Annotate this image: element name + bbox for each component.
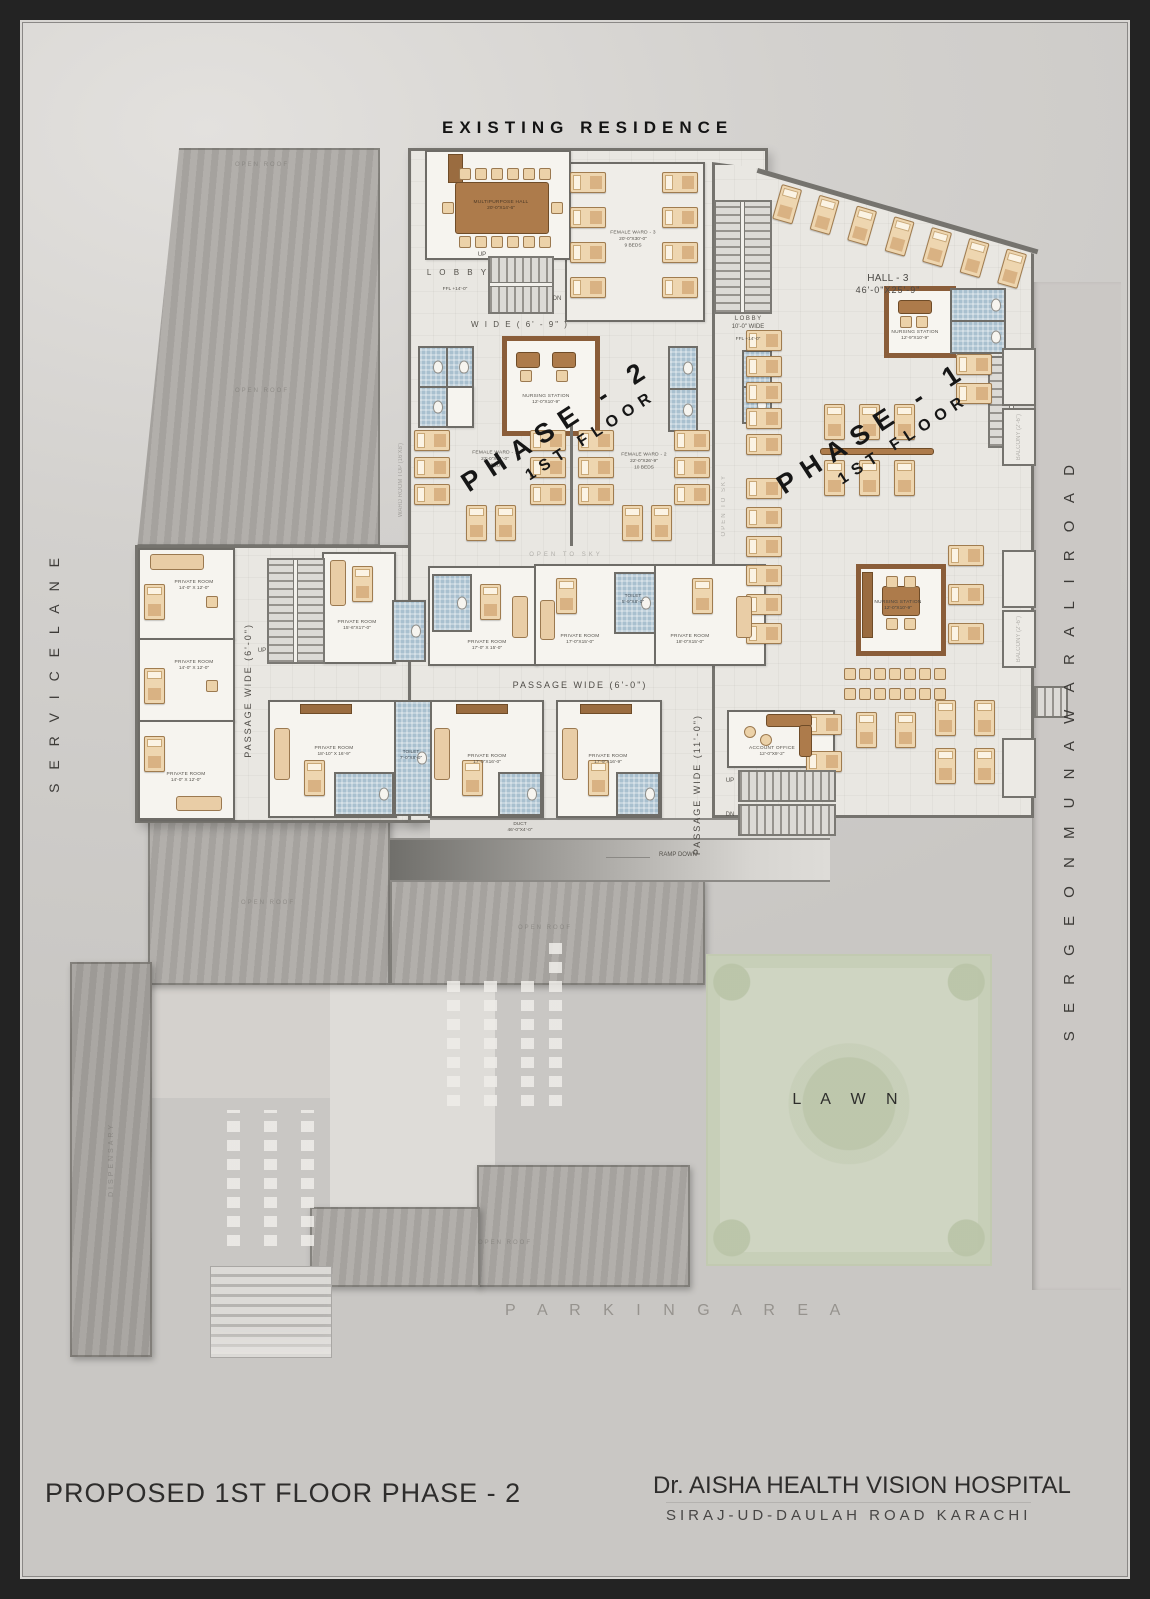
nurse-table — [552, 352, 576, 368]
bed-icon — [578, 484, 614, 505]
tv-console — [580, 704, 632, 714]
bed-column — [948, 545, 984, 644]
bed-icon — [948, 545, 984, 566]
lobby-left-level: FFL +14'-0" — [443, 287, 468, 293]
bed-icon — [662, 242, 698, 263]
chair-icon — [539, 168, 551, 180]
account-office-label: ACCOUNT OFFICE 12'-0"X9'-2" — [749, 746, 795, 758]
open-roof-label: OPEN ROOF — [478, 1240, 532, 1248]
chair-icon — [523, 236, 535, 248]
toilet-room — [432, 574, 472, 632]
service-lane-label: S E R V I C E L A N E — [40, 548, 68, 798]
bed-icon — [662, 172, 698, 193]
bed-icon — [674, 430, 710, 451]
bed-icon — [974, 748, 995, 784]
toilet-room — [950, 320, 1006, 354]
sofa — [736, 596, 752, 638]
duct-label: DUCT 46'-0"X4'-0" — [508, 822, 533, 834]
sofa — [176, 796, 222, 811]
balcony — [1002, 738, 1036, 798]
chair-icon — [459, 236, 471, 248]
bed-icon — [692, 578, 713, 614]
chair-icon — [919, 668, 931, 680]
open-roof-label: OPEN ROOF — [518, 925, 572, 933]
balcony: BALCONY (2'-6") — [1002, 408, 1036, 466]
female-ward-2-label: FEMALE WARD - 2 22'-0"X26'-9" 10 BEDS — [621, 452, 667, 471]
open-to-sky-corridor-label: OPEN TO SKY — [714, 420, 734, 590]
bed-icon — [556, 578, 577, 614]
bed-icon — [570, 277, 606, 298]
chair-icon — [206, 596, 218, 608]
waiting-chairs-row — [844, 668, 946, 680]
private-room-3-label: PRIVATE ROOM 14'-0" X 12'-0" — [167, 772, 206, 784]
bed-icon — [935, 700, 956, 736]
bed-icon — [570, 172, 606, 193]
bed-icon — [674, 457, 710, 478]
parking-marks — [264, 1110, 277, 1246]
chair-icon — [844, 668, 856, 680]
chair-icon — [889, 668, 901, 680]
nursing-station-phase1-label: NURSING STATION 12'-0"X10'-9" — [874, 600, 921, 612]
dn-label: DN — [553, 296, 562, 304]
open-roof-label: OPEN ROOF — [235, 388, 289, 396]
chair-icon — [520, 370, 532, 382]
up-label: UP — [726, 778, 734, 786]
chair-icon — [442, 202, 454, 214]
lobby-left-label: L O B B Y — [427, 268, 489, 278]
tv-console — [456, 704, 508, 714]
bed-icon — [674, 484, 710, 505]
sofa — [434, 728, 450, 780]
chair-icon — [475, 168, 487, 180]
bed-icon — [414, 484, 450, 505]
office-desk — [799, 725, 812, 757]
chair-icon — [507, 236, 519, 248]
parking-marks — [447, 980, 460, 1106]
parking-marks — [549, 938, 562, 1106]
sofa — [512, 596, 528, 638]
bed-icon — [352, 566, 373, 602]
bed-icon — [894, 460, 915, 496]
toilet-room — [668, 346, 698, 390]
lawn: L A W N — [706, 954, 992, 1266]
bed-icon — [651, 505, 672, 541]
chair-icon — [491, 168, 503, 180]
chair-icon — [507, 168, 519, 180]
sofa — [150, 554, 204, 570]
chair-row — [459, 236, 551, 248]
chair-icon — [475, 236, 487, 248]
bed-icon — [922, 227, 952, 267]
counter — [862, 572, 873, 638]
bed-icon — [810, 195, 840, 235]
toilet-room — [418, 346, 448, 388]
ramp-leader-line — [606, 857, 650, 858]
parking-marks — [227, 1110, 240, 1246]
private-room-7-label: PRIVATE ROOM 18'-0"X15'-0" — [671, 634, 710, 646]
bed-icon — [662, 277, 698, 298]
lawn-label: L A W N — [792, 1091, 905, 1109]
bed-column — [414, 430, 450, 505]
bed-icon — [746, 408, 782, 429]
bed-icon — [144, 584, 165, 620]
chair-icon — [904, 688, 916, 700]
stairs-phase1-dn — [738, 804, 836, 836]
bed-column — [746, 330, 782, 455]
chair-row — [459, 168, 551, 180]
sofa — [274, 728, 290, 780]
parking-marks — [521, 980, 534, 1106]
chair-icon — [886, 618, 898, 630]
chair-icon — [874, 688, 886, 700]
open-roof-label: OPEN ROOF — [235, 162, 289, 170]
chair-icon — [889, 688, 901, 700]
chair-icon — [523, 168, 535, 180]
passage-6-horizontal-label: PASSAGE WIDE (6'-0") — [513, 680, 648, 692]
bed-icon — [662, 207, 698, 228]
private-room-9-label: PRIVATE ROOM 17'-0"X16'-0" — [468, 754, 507, 766]
bed-icon — [746, 356, 782, 377]
chair-icon — [551, 202, 563, 214]
nurse-table — [516, 352, 540, 368]
bed-icon — [847, 205, 877, 245]
bed-icon — [974, 700, 995, 736]
parking-marks — [484, 980, 497, 1106]
bed-icon — [414, 457, 450, 478]
bed-icon — [480, 584, 501, 620]
mid-lobby-label: L O B B Y 10'-0" WIDE — [732, 316, 765, 332]
bed-icon — [948, 623, 984, 644]
chair-icon — [844, 688, 856, 700]
chair-icon — [491, 236, 503, 248]
chair-icon — [886, 576, 898, 588]
bed-row — [935, 748, 995, 784]
chair-icon — [744, 726, 756, 738]
bed-icon — [622, 505, 643, 541]
passage-6-vertical-label: PASSAGE WIDE (6'-0") — [236, 585, 260, 795]
bed-icon — [495, 505, 516, 541]
ante-room — [446, 386, 474, 428]
bed-icon — [746, 565, 782, 586]
bed-icon — [144, 668, 165, 704]
toilet-room — [668, 388, 698, 432]
private-room-10-label: PRIVATE ROOM 17'-9"X16'-9" — [589, 754, 628, 766]
balcony — [1002, 550, 1036, 608]
bed-icon — [935, 748, 956, 784]
bed-icon — [746, 382, 782, 403]
chair-icon — [539, 236, 551, 248]
passage-11-label: PASSAGE WIDE (11'-0") — [686, 700, 708, 870]
bed-row — [622, 505, 672, 541]
hospital-name: Dr. AISHA HEALTH VISION HOSPITAL — [653, 1472, 1071, 1500]
chair-icon — [556, 370, 568, 382]
private-room-6-label: PRIVATE ROOM 17'-0"X15'-0" — [561, 634, 600, 646]
chair-icon — [206, 680, 218, 692]
chair-icon — [904, 576, 916, 588]
private-room-4-label: PRIVATE ROOM 15'-6"X17'-0" — [338, 620, 377, 632]
toilet-room — [498, 772, 542, 816]
bed-column — [662, 172, 698, 298]
up-label: UP — [478, 252, 486, 260]
bed-icon — [856, 712, 877, 748]
chair-icon — [459, 168, 471, 180]
hall3-label: HALL - 3 46'-0"X25'-9" — [856, 272, 921, 297]
bed-icon — [304, 760, 325, 796]
waiting-chairs-row — [844, 688, 946, 700]
chair-icon — [904, 618, 916, 630]
private-room-5-label: PRIVATE ROOM 17'-0" X 15'-0" — [468, 640, 507, 652]
chair-icon — [900, 316, 912, 328]
chair-icon — [934, 688, 946, 700]
toilet-t2-label: TOILET 7'-0"X8'-0" — [400, 750, 422, 762]
open-roof-label: OPEN ROOF — [241, 900, 295, 908]
floor-plan-sheet: DISPENSARY L A W N MULTIPURPOSE HALL 20'… — [0, 0, 1150, 1599]
bed-icon — [746, 507, 782, 528]
bed-icon — [144, 736, 165, 772]
up-label: UP — [258, 648, 266, 656]
open-roof-top-left — [135, 148, 380, 546]
mid-lobby-level: FFL +14'-0" — [736, 337, 761, 343]
bed-icon — [414, 430, 450, 451]
chair-icon — [934, 668, 946, 680]
lobby-left-stairs — [488, 256, 554, 314]
open-to-sky-label: OPEN TO SKY — [529, 552, 602, 560]
toilet-room — [616, 772, 660, 816]
bed-icon — [570, 207, 606, 228]
open-roof-step-b — [310, 1207, 480, 1287]
toilet-room — [418, 386, 448, 428]
nurse-table — [898, 300, 932, 314]
toilet-room — [392, 600, 426, 662]
nursing-station-hall3-label: NURSING STATION 12'-9"X10'-9" — [891, 330, 938, 342]
parking-marks — [301, 1110, 314, 1246]
ward-room-top-label: WARD ROOM TOP (16'X8') — [394, 410, 408, 550]
parking-area-label: P A R K I N G A R E A — [505, 1302, 849, 1320]
open-roof-step-a — [477, 1165, 690, 1287]
bed-column — [570, 172, 606, 298]
bed-icon — [885, 216, 915, 256]
ramp-bottom-left — [210, 1266, 332, 1358]
corridor-wide-label: W I D E ( 6' - 9" ) — [471, 320, 569, 330]
bed-row — [935, 700, 995, 736]
sheet-title-left: PROPOSED 1ST FLOOR PHASE - 2 — [45, 1478, 521, 1509]
balcony: BALCONY (2'-6") — [1002, 610, 1036, 668]
mid-stairs — [714, 200, 772, 314]
toilet-t1-label: TOILET 5'-9"X8'-0" — [622, 594, 644, 606]
toilet-room — [334, 772, 394, 816]
bed-icon — [570, 242, 606, 263]
private-room-2-label: PRIVATE ROOM 14'-0" X 12'-0" — [175, 660, 214, 672]
stairs-phase1-up — [738, 770, 836, 802]
chair-icon — [916, 316, 928, 328]
chair-icon — [874, 668, 886, 680]
bed-icon — [578, 457, 614, 478]
stairs-mid-left — [267, 558, 325, 664]
female-ward-3-label: FEMALE WARD - 3 20'-0"X30'-0" 9 BEDS — [610, 230, 656, 249]
chair-icon — [919, 688, 931, 700]
sofa — [562, 728, 578, 780]
bed-column — [674, 430, 710, 505]
bed-icon — [746, 536, 782, 557]
road-right-label: S E R G E O N M U N A W A R A L I R O A … — [1052, 420, 1086, 1080]
multipurpose-hall-label: MULTIPURPOSE HALL 20'-0"X14'-6" — [474, 200, 529, 212]
hospital-address: SIRAJ-UD-DAULAH ROAD KARACHI — [666, 1502, 1031, 1524]
bed-icon — [530, 484, 566, 505]
chair-icon — [904, 668, 916, 680]
bed-icon — [960, 238, 990, 278]
bed-icon — [948, 584, 984, 605]
sofa — [540, 600, 555, 640]
chair-icon — [859, 688, 871, 700]
bed-icon — [746, 434, 782, 455]
balcony — [1002, 348, 1036, 406]
private-room-1-label: PRIVATE ROOM 14'-0" X 12'-0" — [175, 580, 214, 592]
dispensary-block: DISPENSARY — [70, 962, 152, 1357]
existing-residence-label: EXISTING RESIDENCE — [442, 118, 733, 138]
chair-icon — [760, 734, 772, 746]
chair-icon — [859, 668, 871, 680]
bed-row — [856, 712, 916, 748]
dn-label: DN — [726, 812, 735, 820]
sofa — [330, 560, 346, 606]
bed-icon — [895, 712, 916, 748]
dispensary-label: DISPENSARY — [108, 1122, 115, 1197]
ramp-down — [390, 838, 830, 882]
toilet-room — [446, 346, 474, 388]
tv-console — [300, 704, 352, 714]
private-room-8-label: PRIVATE ROOM 18'-10" X 16'-9" — [315, 746, 354, 758]
toilet-room — [950, 288, 1006, 322]
